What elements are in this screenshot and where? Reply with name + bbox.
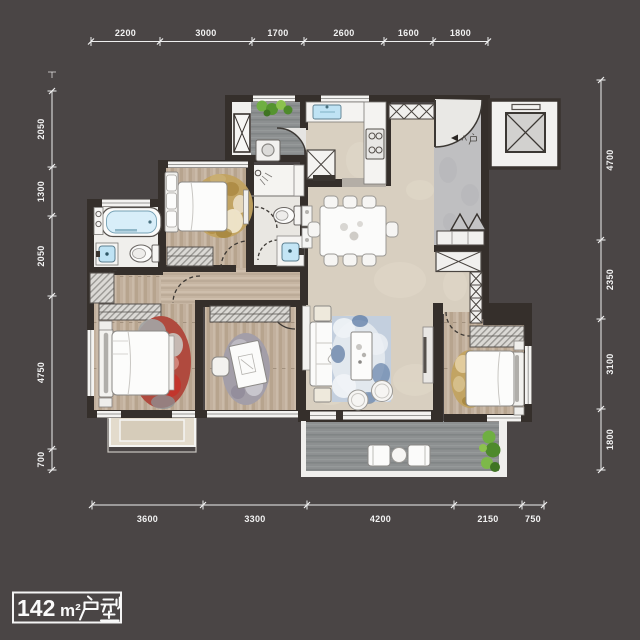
svg-text:3000: 3000	[195, 28, 216, 38]
svg-text:3600: 3600	[137, 514, 158, 524]
svg-text:4750: 4750	[36, 362, 46, 383]
svg-text:4700: 4700	[605, 149, 615, 170]
svg-text:2050: 2050	[36, 118, 46, 139]
svg-text:3100: 3100	[605, 353, 615, 374]
svg-text:2150: 2150	[477, 514, 498, 524]
svg-text:1300: 1300	[36, 181, 46, 202]
svg-text:3300: 3300	[244, 514, 265, 524]
svg-text:1800: 1800	[605, 429, 615, 450]
svg-text:2200: 2200	[115, 28, 136, 38]
svg-text:1800: 1800	[450, 28, 471, 38]
svg-text:2350: 2350	[605, 269, 615, 290]
svg-text:1600: 1600	[398, 28, 419, 38]
svg-text:700: 700	[36, 452, 46, 468]
svg-text:142: 142	[17, 595, 55, 621]
svg-text:1700: 1700	[267, 28, 288, 38]
svg-text:4200: 4200	[370, 514, 391, 524]
svg-text:750: 750	[525, 514, 541, 524]
svg-text:2600: 2600	[333, 28, 354, 38]
svg-text:m²: m²	[60, 601, 81, 620]
svg-text:2050: 2050	[36, 245, 46, 266]
